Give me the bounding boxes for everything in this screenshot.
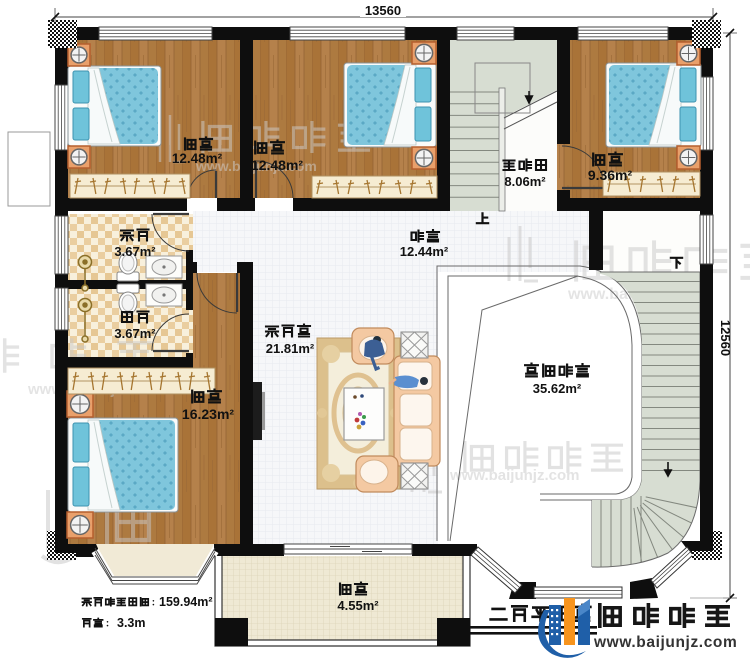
svg-text:www.baijunjz.com: www.baijunjz.com: [449, 467, 579, 484]
svg-text:13560: 13560: [365, 3, 401, 18]
svg-text:12.48m²: 12.48m²: [172, 151, 223, 166]
svg-text:www.baijunjz.com: www.baijunjz.com: [593, 634, 737, 651]
svg-text:4.55m²: 4.55m²: [337, 598, 379, 613]
svg-text:12.44m²: 12.44m²: [400, 244, 449, 259]
svg-text:3.67m²: 3.67m²: [114, 326, 156, 341]
svg-text:8.06m²: 8.06m²: [504, 174, 546, 189]
svg-text:12.48m²: 12.48m²: [251, 157, 303, 173]
svg-text:35.62m²: 35.62m²: [533, 381, 582, 396]
svg-text:9.36m²: 9.36m²: [588, 167, 633, 183]
svg-text:12560: 12560: [718, 320, 733, 356]
svg-text:21.81m²: 21.81m²: [266, 341, 315, 356]
svg-text:159.94m²: 159.94m²: [159, 595, 213, 609]
svg-text:16.23m²: 16.23m²: [182, 406, 234, 422]
svg-text:3.3m: 3.3m: [117, 616, 146, 630]
svg-text:3.67m²: 3.67m²: [114, 244, 156, 259]
